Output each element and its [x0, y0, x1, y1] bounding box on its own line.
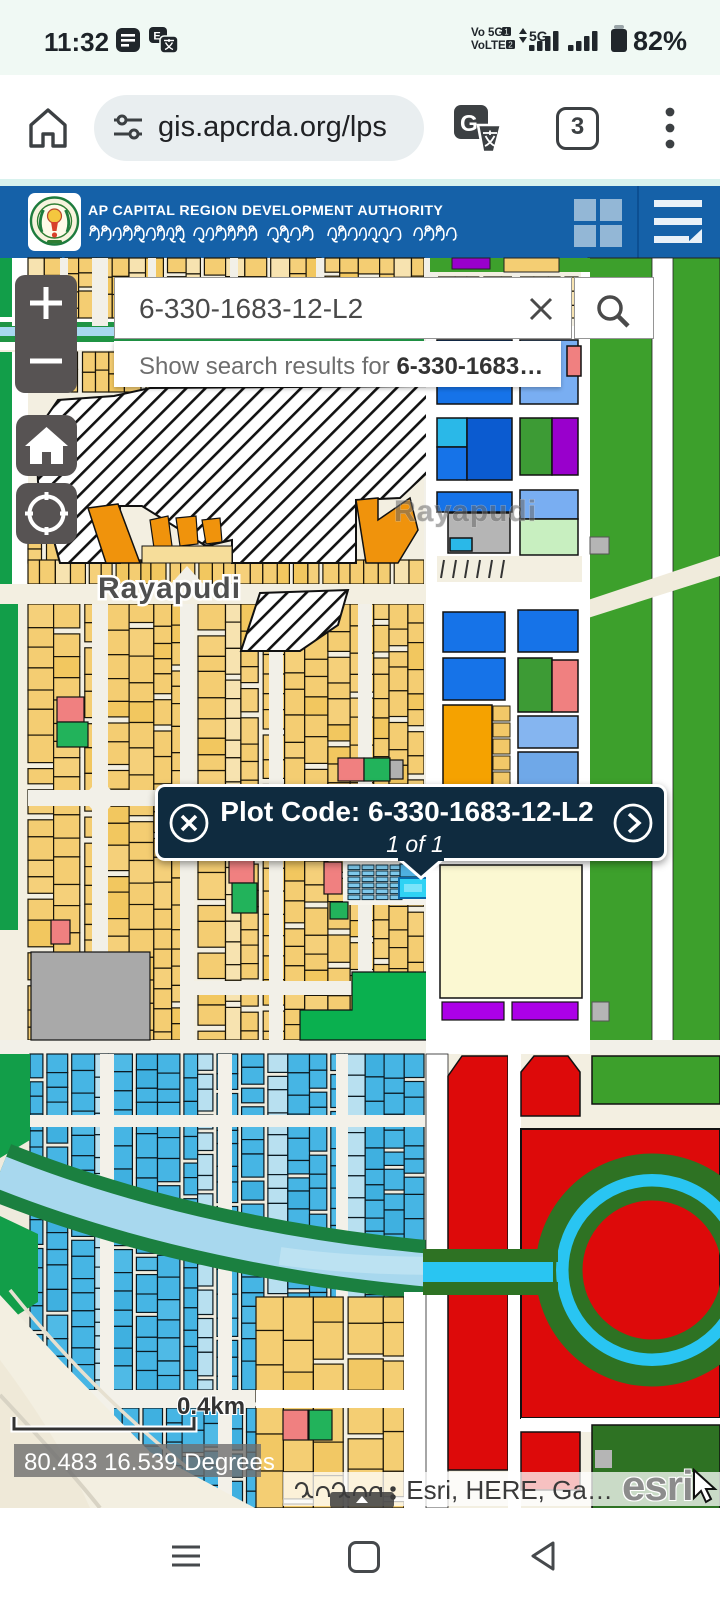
svg-text:Rayapudi: Rayapudi	[394, 495, 537, 528]
svg-text:Rayapudi: Rayapudi	[98, 572, 241, 605]
